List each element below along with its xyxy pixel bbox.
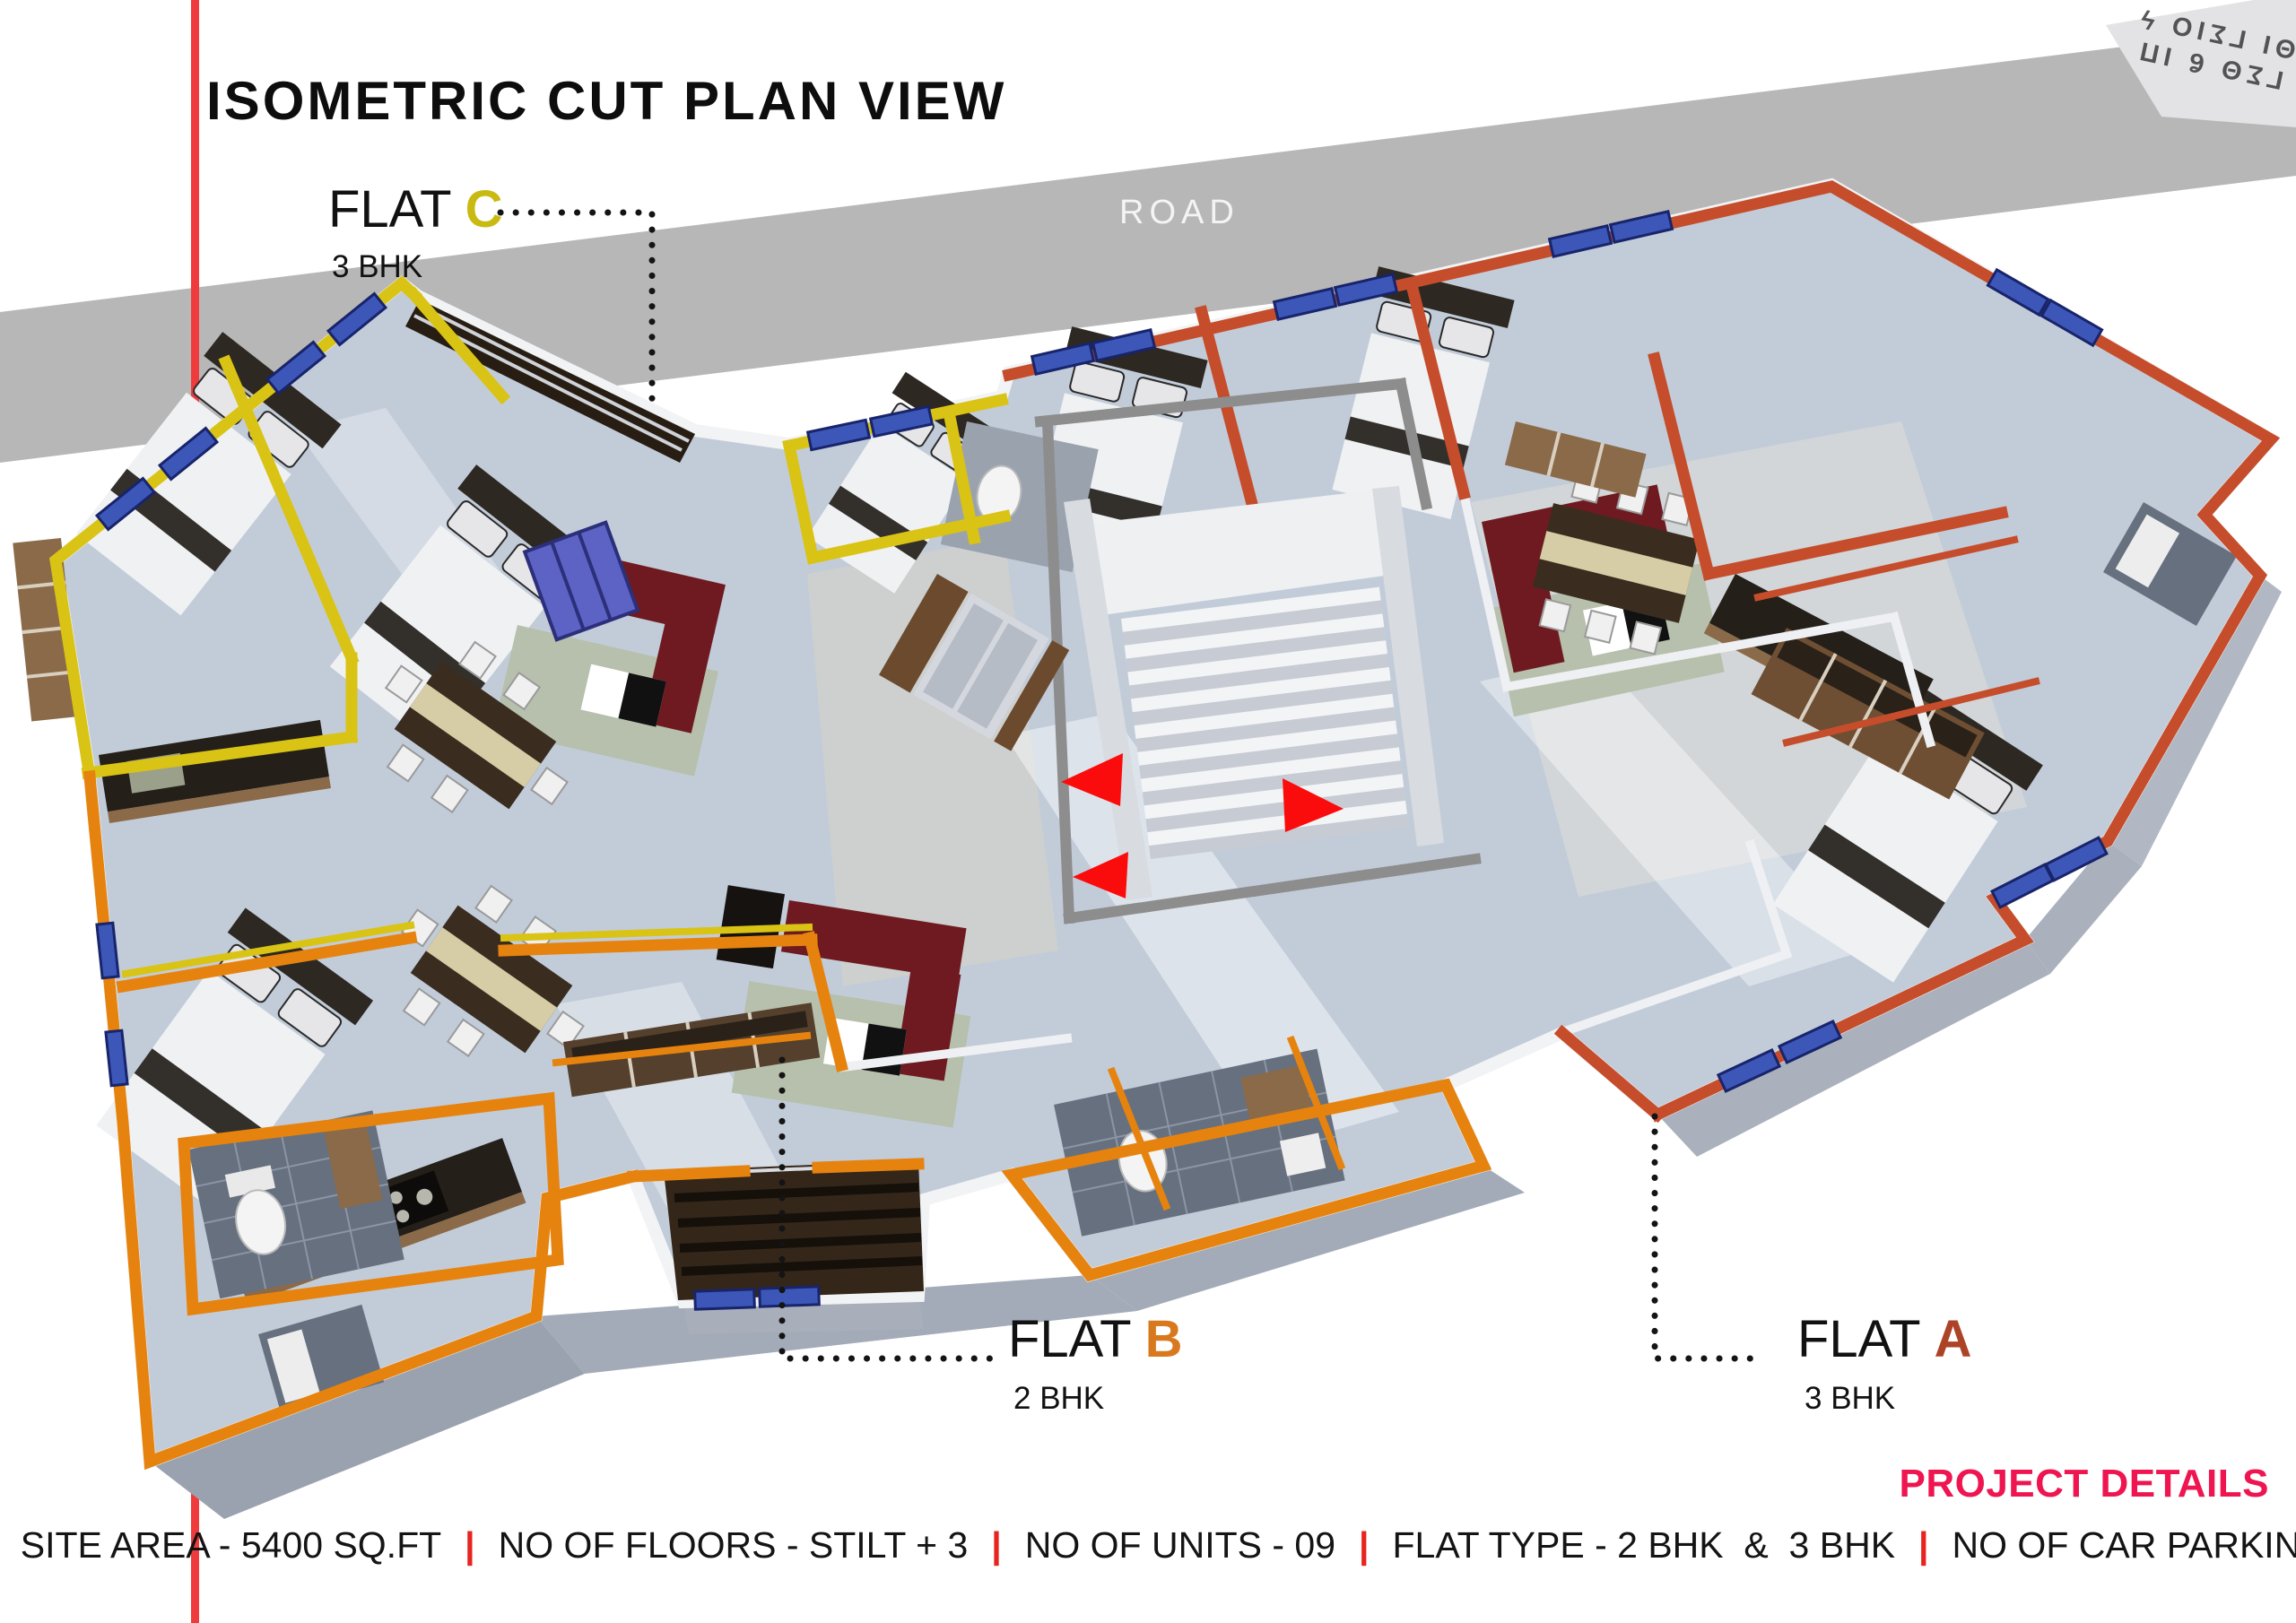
flat-c-letter: C (465, 180, 503, 239)
detail-units: NO OF UNITS - 09 (1025, 1524, 1335, 1567)
flat-a-bhk: 3 BHK (1805, 1381, 1895, 1417)
poster-page: ISOMETRIC CUT PLAN VIEW ROAD ΓΣΘ ϐ ΙΠ ΘΙ… (0, 0, 2296, 1623)
stair-steps (1121, 587, 1409, 859)
detail-floors: NO OF FLOORS - STILT + 3 (499, 1524, 969, 1567)
flat-b-name: FLAT (1008, 1310, 1145, 1368)
balcony (664, 1160, 924, 1300)
flat-c-bhk: 3 BHK (332, 249, 422, 285)
flat-b-letter: B (1145, 1310, 1183, 1368)
isometric-floor-plan (0, 0, 2296, 1623)
project-details-heading: PROJECT DETAILS (1899, 1462, 2269, 1506)
flat-b-label: FLAT B (1008, 1309, 1182, 1369)
road-label: ROAD (1119, 194, 1239, 232)
leader-line-flat-a (1655, 1116, 1763, 1358)
detail-site-area: SITE AREA - 5400 SQ.FT (21, 1524, 441, 1567)
flat-b-bhk: 2 BHK (1013, 1381, 1104, 1417)
detail-separator: | (1918, 1524, 1928, 1567)
detail-parking: NO OF CAR PARKING - 16 (1952, 1524, 2296, 1567)
detail-separator: | (465, 1524, 474, 1567)
flat-a-name: FLAT (1797, 1310, 1935, 1368)
flat-a-label: FLAT A (1797, 1309, 1971, 1369)
flat-a-letter: A (1935, 1310, 1972, 1368)
detail-flat-type: FLAT TYPE - 2 BHK & 3 BHK (1393, 1524, 1896, 1567)
page-title: ISOMETRIC CUT PLAN VIEW (206, 70, 1006, 132)
detail-separator: | (991, 1524, 1001, 1567)
flat-c-label: FLAT C (328, 179, 502, 239)
project-details-row: SITE AREA - 5400 SQ.FT | NO OF FLOORS - … (135, 1524, 2289, 1567)
flat-c-name: FLAT (328, 180, 465, 239)
detail-separator: | (1359, 1524, 1369, 1567)
